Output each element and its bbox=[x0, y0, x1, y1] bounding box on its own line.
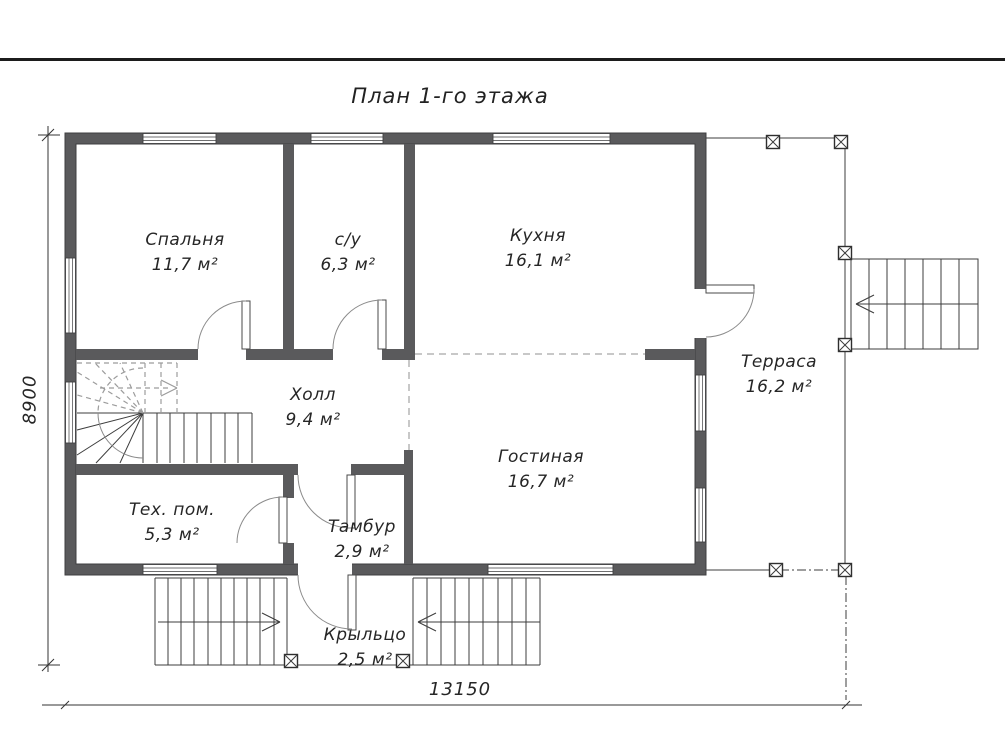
room-label-bathroom: с/у 6,3 м² bbox=[320, 228, 375, 278]
door-bedroom bbox=[198, 301, 250, 349]
floor-plan-drawing bbox=[0, 0, 1005, 754]
post-markers bbox=[285, 136, 852, 668]
wall-hall-bottom bbox=[76, 464, 413, 475]
post-icon bbox=[835, 136, 848, 149]
room-area: 16,1 м² bbox=[505, 249, 571, 274]
room-name: Тамбур bbox=[328, 515, 396, 540]
room-area: 2,5 м² bbox=[324, 648, 407, 673]
door-entrance-porch bbox=[298, 575, 356, 630]
room-area: 16,7 м² bbox=[498, 470, 584, 495]
post-icon bbox=[839, 247, 852, 260]
room-label-utility: Тех. пом. 5,3 м² bbox=[129, 498, 215, 548]
dimension-height: 8900 bbox=[20, 360, 41, 440]
floor-plan-canvas: План 1-го этажа bbox=[0, 0, 1005, 754]
dimension-line-vertical bbox=[38, 126, 60, 672]
wall-bedroom-bathroom bbox=[283, 144, 294, 360]
room-label-terrace: Терраса 16,2 м² bbox=[741, 350, 817, 400]
window-utility-bottom bbox=[143, 565, 217, 575]
room-name: Гостиная bbox=[498, 445, 584, 470]
room-label-porch: Крыльцо 2,5 м² bbox=[324, 623, 407, 673]
window-bedroom-top bbox=[143, 134, 216, 144]
post-icon bbox=[770, 564, 783, 577]
room-name: Холл bbox=[285, 383, 340, 408]
terrace-outline bbox=[706, 138, 846, 700]
wall-bathroom-kitchen bbox=[404, 144, 415, 360]
stair-direction-arrow-left bbox=[856, 295, 978, 313]
room-area: 6,3 м² bbox=[320, 253, 375, 278]
room-label-living-room: Гостиная 16,7 м² bbox=[498, 445, 584, 495]
window-living-right-upper bbox=[696, 375, 706, 431]
room-name: Кухня bbox=[505, 224, 571, 249]
window-living-bottom bbox=[488, 565, 613, 575]
dimension-line-horizontal bbox=[42, 701, 862, 709]
room-area: 5,3 м² bbox=[129, 523, 215, 548]
room-label-hall: Холл 9,4 м² bbox=[285, 383, 340, 433]
room-name: Спальня bbox=[145, 228, 224, 253]
post-icon bbox=[839, 339, 852, 352]
post-icon bbox=[285, 655, 298, 668]
stair-direction-arrow-right bbox=[158, 613, 280, 631]
dimension-width: 13150 bbox=[429, 679, 491, 700]
room-area: 16,2 м² bbox=[741, 375, 817, 400]
room-name: Крыльцо bbox=[324, 623, 407, 648]
stair-direction-arrow-left bbox=[418, 613, 540, 631]
post-icon bbox=[839, 564, 852, 577]
room-label-bedroom: Спальня 11,7 м² bbox=[145, 228, 224, 278]
room-name: с/у bbox=[320, 228, 375, 253]
door-vestibule-utility bbox=[237, 497, 287, 543]
post-icon bbox=[767, 136, 780, 149]
window-bathroom-top bbox=[311, 134, 383, 144]
room-label-kitchen: Кухня 16,1 м² bbox=[505, 224, 571, 274]
room-area: 2,9 м² bbox=[328, 540, 396, 565]
door-openings bbox=[198, 289, 707, 576]
room-label-vestibule: Тамбур 2,9 м² bbox=[328, 515, 396, 565]
window-kitchen-top bbox=[493, 134, 610, 144]
window-living-right-lower bbox=[696, 488, 706, 542]
room-name: Тех. пом. bbox=[129, 498, 215, 523]
terrace-stairs bbox=[851, 259, 978, 349]
window-hall-left bbox=[66, 382, 76, 443]
hall-staircase bbox=[77, 363, 252, 463]
door-kitchen-terrace bbox=[706, 285, 754, 337]
wall-vestibule-living bbox=[404, 450, 413, 564]
room-area: 11,7 м² bbox=[145, 253, 224, 278]
room-area: 9,4 м² bbox=[285, 408, 340, 433]
door-bathroom bbox=[333, 300, 386, 349]
wall-kitchen-stub bbox=[645, 349, 695, 360]
open-boundaries bbox=[409, 354, 645, 450]
room-name: Терраса bbox=[741, 350, 817, 375]
window-bedroom-left bbox=[66, 258, 76, 333]
porch-stairs-left bbox=[155, 578, 287, 665]
